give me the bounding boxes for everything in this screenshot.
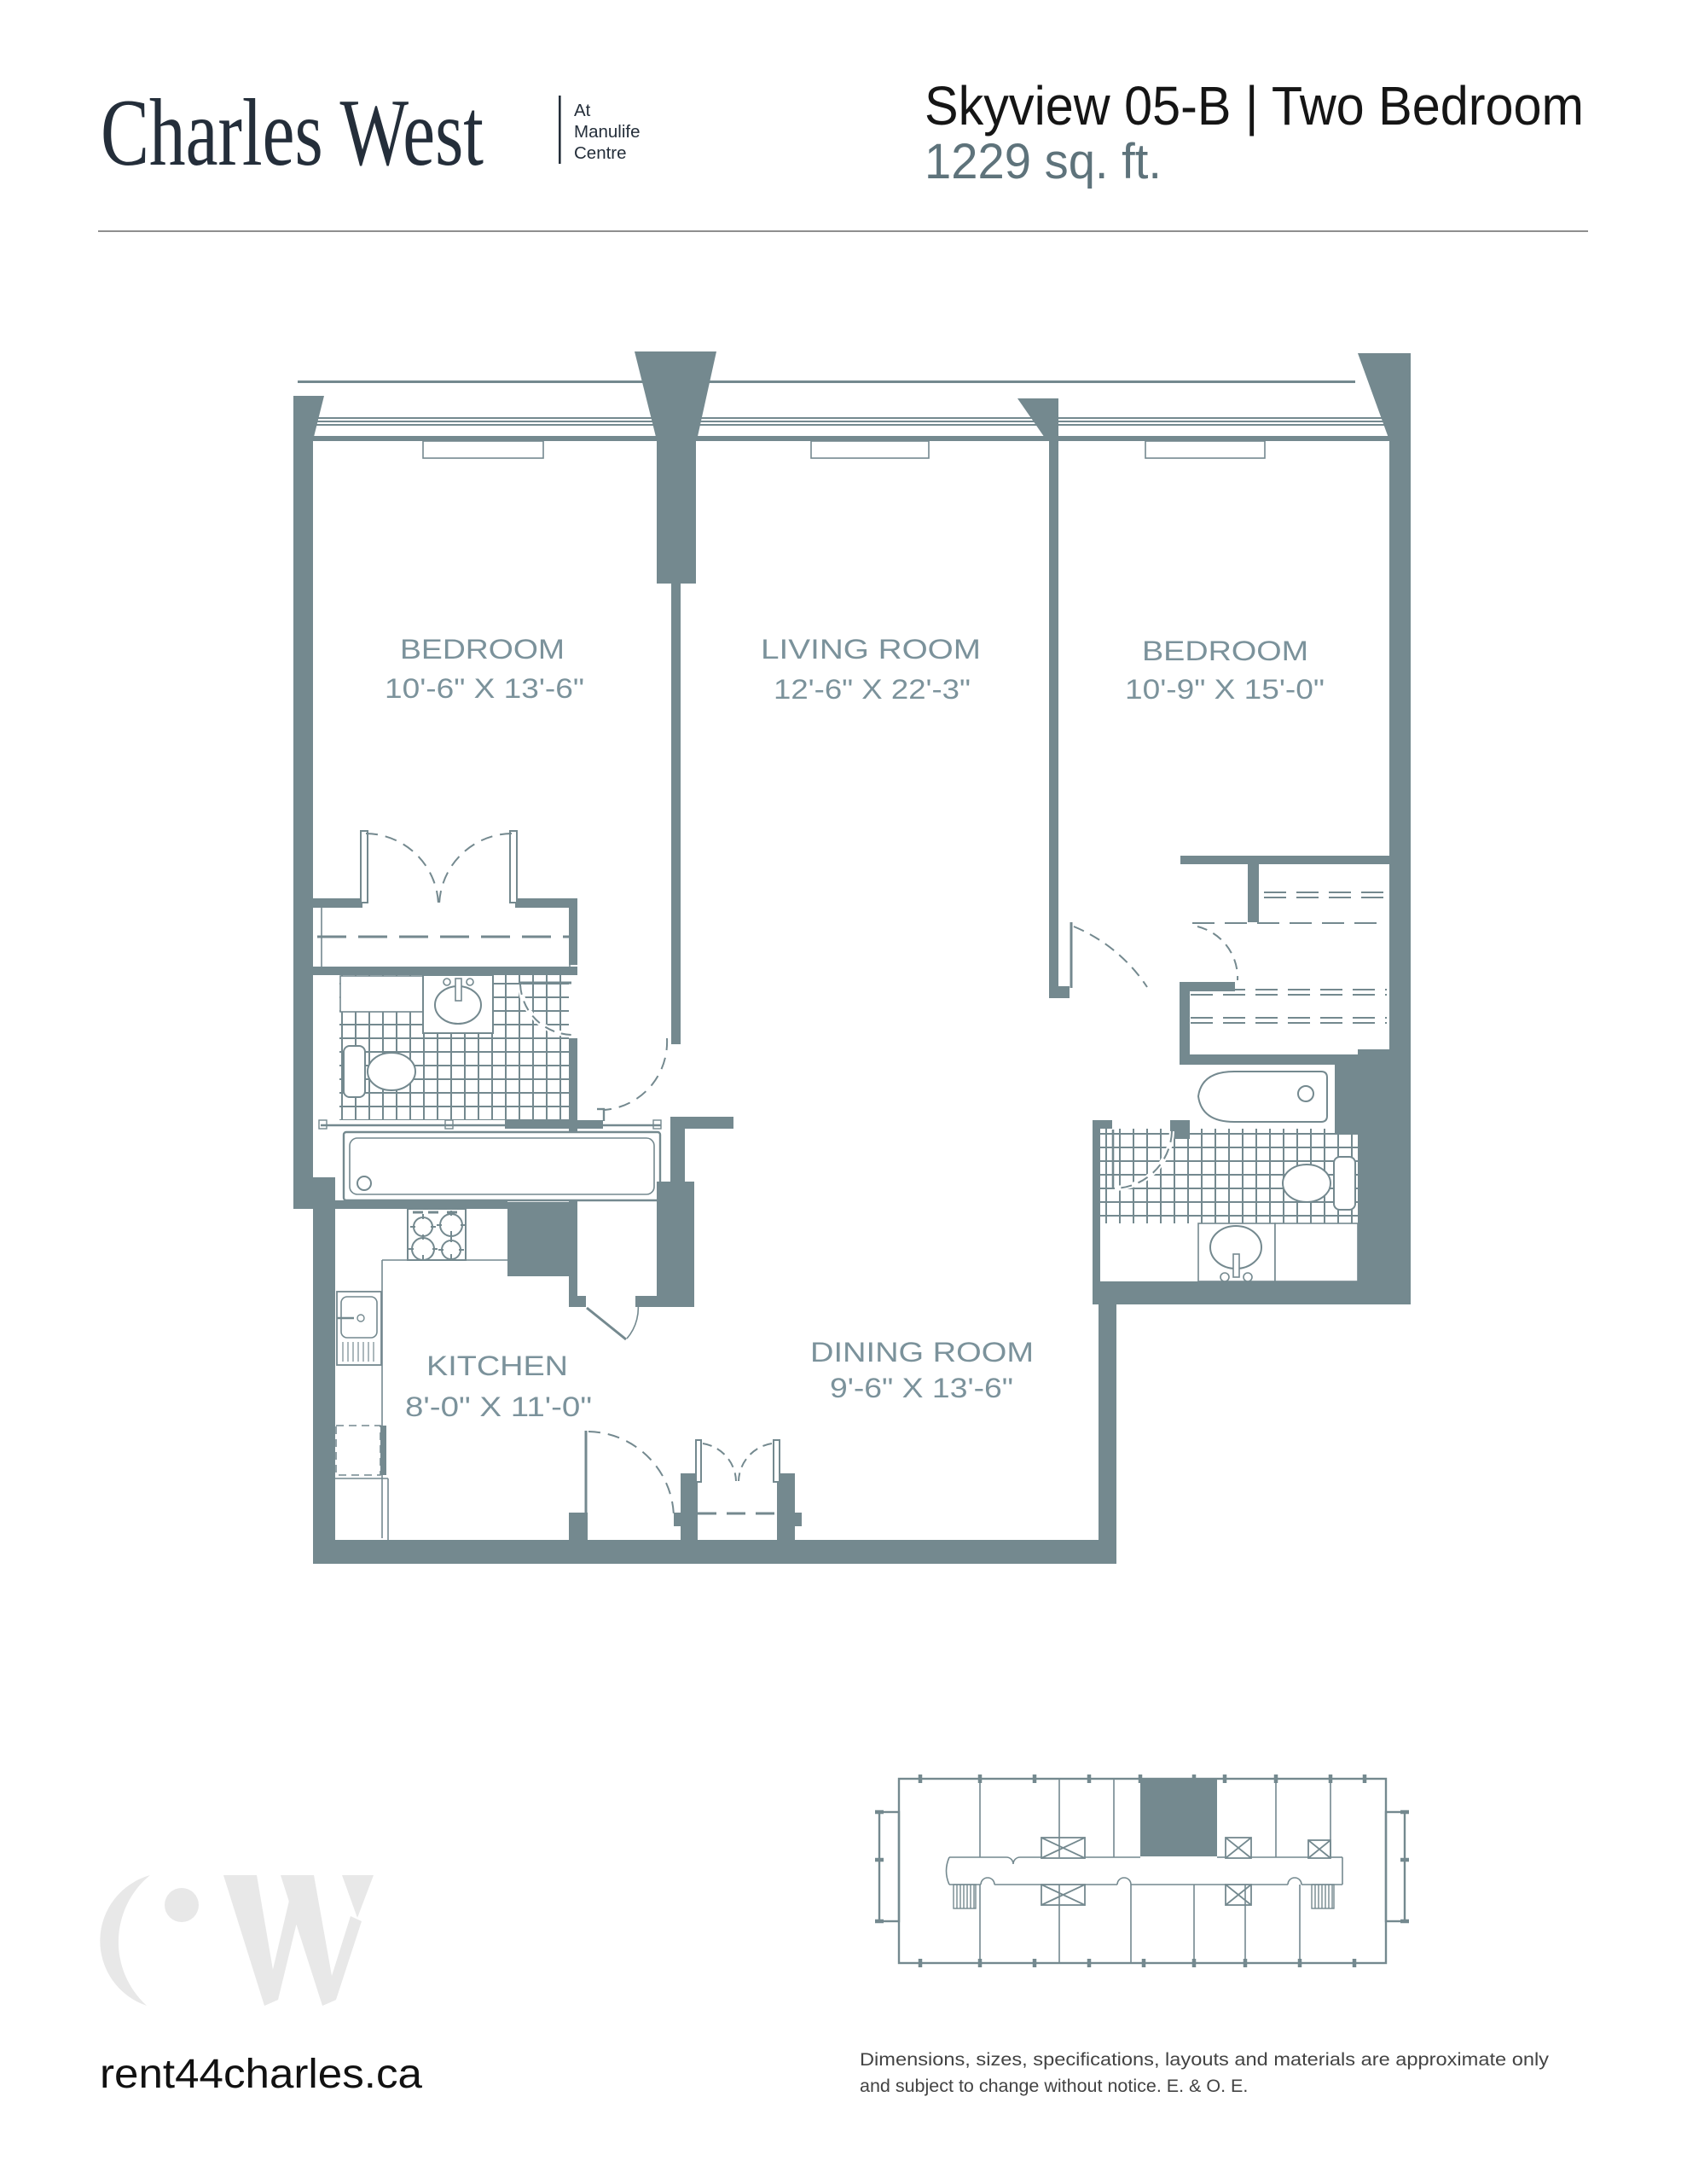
svg-text:BEDROOM: BEDROOM (400, 634, 565, 665)
svg-text:12'-6" X 22'-3": 12'-6" X 22'-3" (774, 674, 971, 705)
svg-text:KITCHEN: KITCHEN (426, 1350, 568, 1381)
svg-text:10'-9" X 15'-0": 10'-9" X 15'-0" (1125, 674, 1325, 705)
svg-text:Charles West: Charles West (101, 80, 484, 186)
svg-text:rent44charles.ca: rent44charles.ca (100, 2052, 422, 2097)
svg-text:BEDROOM: BEDROOM (1142, 636, 1308, 666)
svg-text:10'-6" X 13'-6": 10'-6" X 13'-6" (385, 673, 584, 704)
svg-text:9'-6" X 13'-6": 9'-6" X 13'-6" (830, 1373, 1013, 1403)
svg-text:1229 sq. ft.: 1229 sq. ft. (925, 134, 1162, 189)
svg-text:LIVING ROOM: LIVING ROOM (761, 634, 981, 665)
svg-text:8'-0" X 11'-0": 8'-0" X 11'-0" (405, 1391, 592, 1422)
svg-text:Skyview 05-B | Two Bedroom: Skyview 05-B | Two Bedroom (925, 75, 1584, 136)
svg-text:and subject to change without: and subject to change without notice. E.… (860, 2076, 1248, 2096)
svg-text:Dimensions, sizes, specificati: Dimensions, sizes, specifications, layou… (860, 2049, 1549, 2070)
svg-text:Manulife: Manulife (574, 122, 641, 142)
svg-text:At: At (574, 101, 591, 120)
svg-text:Centre: Centre (574, 143, 627, 163)
svg-text:DINING ROOM: DINING ROOM (810, 1337, 1034, 1368)
